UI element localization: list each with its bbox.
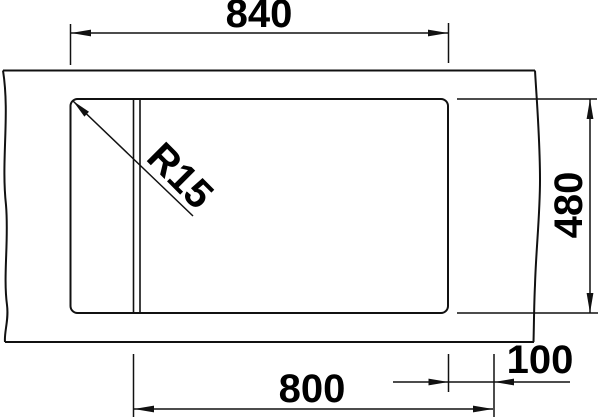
- technical-drawing: 840 480 800 100 R15: [0, 0, 600, 420]
- dim-label-bottom-width: 800: [279, 369, 346, 409]
- sink-cutout-outline: [71, 99, 449, 313]
- dim-label-bottom-offset: 100: [507, 340, 574, 380]
- dim-840-arrow-left: [71, 30, 91, 37]
- dim-480-arrow-top: [587, 99, 594, 119]
- dim-label-right-depth: 480: [549, 172, 589, 239]
- countertop-break-line-left: [3, 71, 7, 343]
- dim-label-top-width: 840: [226, 0, 293, 34]
- dim-100-arrow-left: [429, 379, 449, 386]
- dim-800-arrow-left: [134, 406, 154, 413]
- dim-840-arrow-right: [428, 30, 448, 37]
- countertop-break-line-right: [534, 71, 541, 343]
- dim-800-arrow-right: [473, 406, 493, 413]
- dim-480-arrow-bottom: [587, 293, 594, 313]
